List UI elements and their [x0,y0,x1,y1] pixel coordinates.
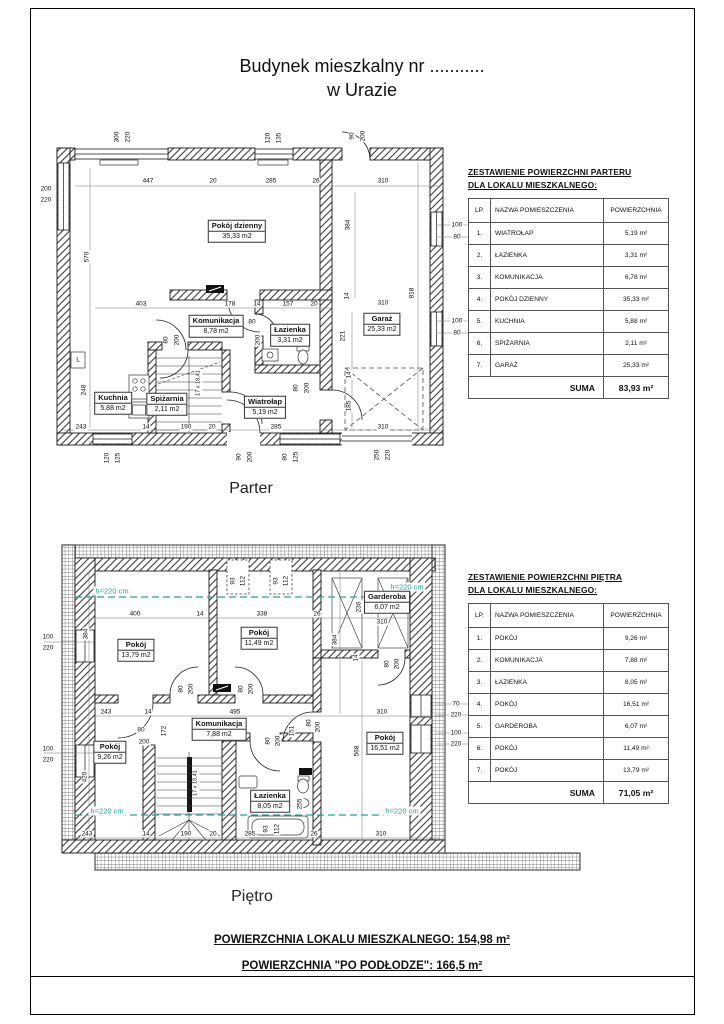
table-cell: 2. [469,650,491,672]
table-cell: 5. [469,716,491,738]
wardrobe-braces [332,578,408,648]
pietro-dim-lines [44,572,468,843]
table-cell: 13,79 m² [604,760,669,782]
table-title-line: DLA LOKALU MIESZKALNEGO: [468,584,678,597]
stair-spine-wall [187,757,192,812]
parter-stairs [156,356,222,432]
table-cell: POKÓJ DZIENNY [491,289,604,311]
table-cell: 6. [469,333,491,355]
pietro-walls [62,558,445,853]
table-cell: 3,31 m² [604,245,669,267]
table-cell: KOMUNIKACJA [491,267,604,289]
table-title-line: ZESTAWIENIE POWIERZCHNI PARTERU [468,166,678,179]
table-cell: KUCHNIA [491,311,604,333]
table-cell: POKÓJ [491,628,604,650]
table-cell: POKÓJ [491,694,604,716]
table-header: POWIERZCHNIA [604,604,669,628]
table-cell: 2. [469,245,491,267]
table-cell: 4. [469,289,491,311]
table-cell: POKÓJ [491,738,604,760]
area-table-pietro: ZESTAWIENIE POWIERZCHNI PIĘTRA DLA LOKAL… [468,571,678,804]
table-row: 3.ŁAZIENKA8,05 m² [469,672,669,694]
table-cell: 1. [469,628,491,650]
summary-line-1: POWIERZCHNIA LOKALU MIESZKALNEGO: 154,98… [30,927,694,953]
table-row: 2.ŁAZIENKA3,31 m² [469,245,669,267]
table-cell: 25,33 m² [604,355,669,377]
summary-line-2: POWIERZCHNIA "PO PODŁODZE": 166,5 m² [30,953,694,979]
table-row: 6.POKÓJ11,49 m² [469,738,669,760]
table-title-line: DLA LOKALU MIESZKALNEGO: [468,179,678,192]
table-cell: 35,33 m² [604,289,669,311]
summary-block: POWIERZCHNIA LOKALU MIESZKALNEGO: 154,98… [30,927,694,979]
table-header: NAZWA POMIESZCZENIA [491,199,604,223]
parter-caption: Parter [229,480,273,498]
table-row: 1.WIATROŁAP5,19 m² [469,223,669,245]
table-row: 7.GARAŻ25,33 m² [469,355,669,377]
table-cell: 5. [469,311,491,333]
table-row: 4.POKÓJ16,51 m² [469,694,669,716]
table-cell: ŁAZIENKA [491,672,604,694]
area-table: LP.NAZWA POMIESZCZENIAPOWIERZCHNIA1.POKÓ… [468,603,669,804]
table-row: 6.SPIŻARNIA2,11 m² [469,333,669,355]
garage-gate-swing [345,368,423,430]
table-cell: 5,88 m² [604,311,669,333]
area-table: LP.NAZWA POMIESZCZENIAPOWIERZCHNIA1.WIAT… [468,198,669,399]
table-cell: KOMUNIKACJA [491,650,604,672]
table-header: LP. [469,199,491,223]
table-row: 7.POKÓJ13,79 m² [469,760,669,782]
area-table-pietro-title: ZESTAWIENIE POWIERZCHNI PIĘTRA DLA LOKAL… [468,571,678,596]
table-cell: 6,78 m² [604,267,669,289]
pietro-fixtures [239,776,309,838]
table-suma-row: SUMA71,05 m² [469,782,669,804]
area-table-parter: ZESTAWIENIE POWIERZCHNI PARTERU DLA LOKA… [468,166,678,399]
table-suma-row: SUMA83,93 m² [469,377,669,399]
table-title-line: ZESTAWIENIE POWIERZCHNI PIĘTRA [468,571,678,584]
table-cell: 8,05 m² [604,672,669,694]
table-cell: 1. [469,223,491,245]
table-cell: 3. [469,267,491,289]
floorplan-drawing [0,0,724,1024]
parter-plan [57,132,468,446]
table-row: 5.KUCHNIA5,88 m² [469,311,669,333]
table-cell: 9,26 m² [604,628,669,650]
table-cell: 5,19 m² [604,223,669,245]
table-cell: 6. [469,738,491,760]
table-suma-label: SUMA [469,782,604,804]
table-cell: 11,49 m² [604,738,669,760]
table-row: 3.KOMUNIKACJA6,78 m² [469,267,669,289]
table-header: LP. [469,604,491,628]
table-cell: 3. [469,672,491,694]
table-cell: 16,51 m² [604,694,669,716]
washer [299,768,312,775]
drawing-page: Budynek mieszkalny nr ........... w Uraz… [0,0,724,1024]
table-cell: GARAŻ [491,355,604,377]
table-cell: GARDEROBA [491,716,604,738]
parter-walls [57,148,443,445]
table-row: 2.KOMUNIKACJA7,88 m² [469,650,669,672]
table-row: 5.GARDEROBA6,07 m² [469,716,669,738]
table-suma-label: SUMA [469,377,604,399]
table-cell: 4. [469,694,491,716]
area-table-parter-title: ZESTAWIENIE POWIERZCHNI PARTERU DLA LOKA… [468,166,678,191]
table-suma-value: 83,93 m² [604,377,669,399]
table-cell: 2,11 m² [604,333,669,355]
parter-window-lines [64,154,437,441]
table-cell: SPIŻARNIA [491,333,604,355]
table-cell: ŁAZIENKA [491,245,604,267]
table-row: 1.POKÓJ9,26 m² [469,628,669,650]
pietro-caption: Piętro [231,888,273,906]
table-cell: 7,88 m² [604,650,669,672]
table-row: 4.POKÓJ DZIENNY35,33 m² [469,289,669,311]
parter-fixtures [71,160,309,418]
table-cell: 7. [469,760,491,782]
table-header: POWIERZCHNIA [604,199,669,223]
table-cell: WIATROŁAP [491,223,604,245]
table-cell: POKÓJ [491,760,604,782]
table-suma-value: 71,05 m² [604,782,669,804]
table-header: NAZWA POMIESZCZENIA [491,604,604,628]
parter-door-arcs [156,132,370,433]
table-cell: 7. [469,355,491,377]
table-cell: 6,07 m² [604,716,669,738]
